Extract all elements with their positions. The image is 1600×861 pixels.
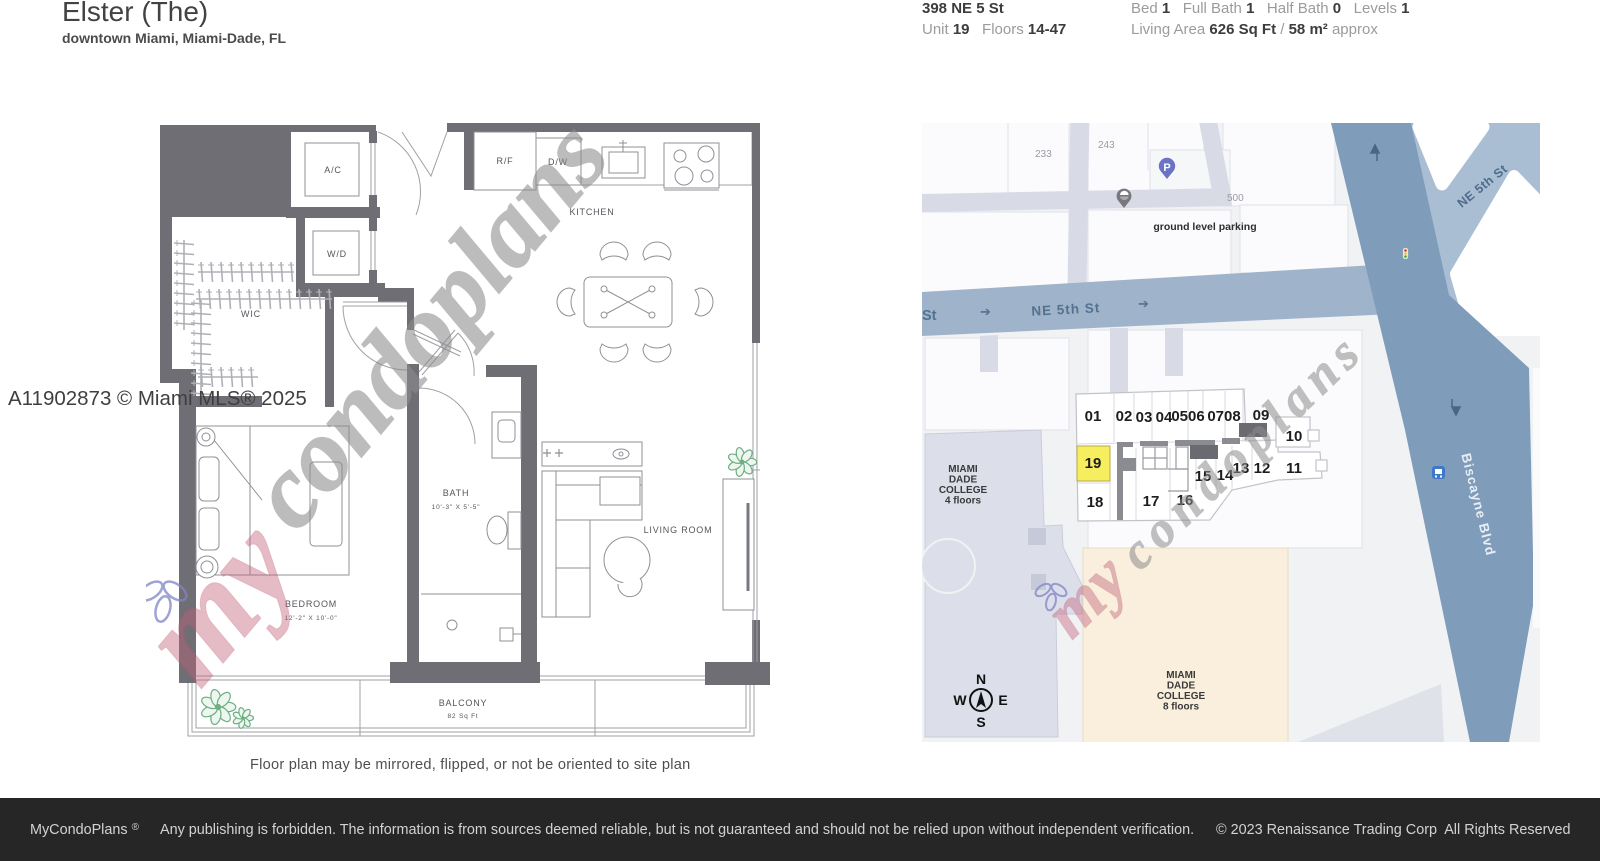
svg-text:W: W: [953, 692, 967, 708]
svg-text:01: 01: [1085, 408, 1102, 425]
svg-text:MIAMI: MIAMI: [948, 464, 978, 475]
svg-text:DADE: DADE: [1167, 681, 1196, 692]
svg-text:4 floors: 4 floors: [945, 496, 982, 507]
svg-text:COLLEGE: COLLEGE: [939, 485, 988, 496]
svg-text:10'-3" X 5'-5": 10'-3" X 5'-5": [432, 504, 481, 511]
svg-text:WIC: WIC: [241, 309, 261, 319]
svg-text:➔: ➔: [1138, 296, 1149, 311]
svg-text:243: 243: [1098, 140, 1115, 151]
svg-text:BATH: BATH: [443, 488, 470, 498]
svg-text:COLLEGE: COLLEGE: [1157, 691, 1206, 702]
svg-text:LIVING ROOM: LIVING ROOM: [644, 525, 713, 535]
svg-text:82 Sq Ft: 82 Sq Ft: [448, 713, 479, 720]
svg-text:ground level parking: ground level parking: [1153, 221, 1256, 233]
svg-text:0506: 0506: [1171, 408, 1204, 425]
svg-text:P: P: [1163, 162, 1170, 174]
svg-text:233: 233: [1035, 149, 1052, 160]
svg-text:S: S: [976, 714, 985, 730]
svg-text:BALCONY: BALCONY: [439, 698, 488, 708]
svg-text:E: E: [998, 692, 1007, 708]
svg-text:W/D: W/D: [327, 249, 347, 259]
svg-text:MIAMI: MIAMI: [1166, 670, 1196, 681]
svg-text:N: N: [976, 671, 986, 687]
svg-text:11: 11: [1286, 460, 1302, 477]
svg-text:St: St: [922, 308, 937, 324]
svg-text:19: 19: [1085, 455, 1102, 472]
svg-text:03: 03: [1136, 409, 1153, 426]
svg-text:➔: ➔: [980, 304, 991, 319]
svg-text:A/C: A/C: [324, 165, 341, 175]
svg-text:18: 18: [1087, 494, 1104, 511]
svg-text:02: 02: [1116, 408, 1133, 425]
svg-text:500: 500: [1227, 193, 1244, 204]
svg-text:DADE: DADE: [949, 475, 978, 486]
svg-text:8 floors: 8 floors: [1163, 702, 1200, 713]
